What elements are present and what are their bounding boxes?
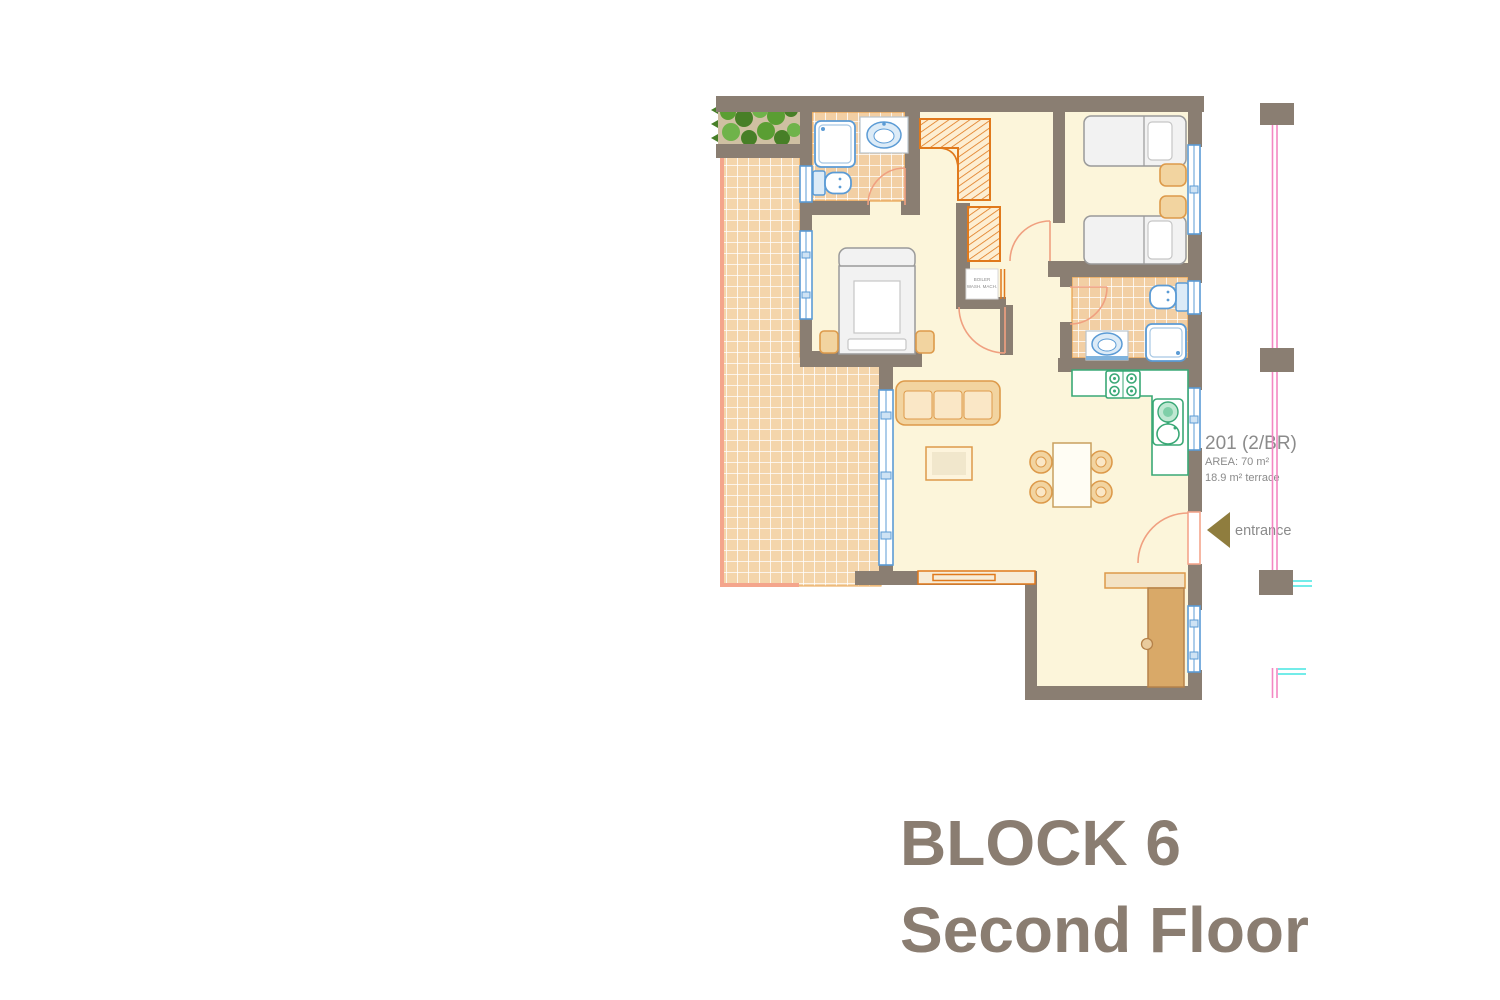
- kitchen-sink-icon: [1153, 399, 1183, 445]
- dining-chair-icon: [1030, 481, 1052, 503]
- sink-icon: [1086, 331, 1128, 360]
- tall-cabinet-icon: [1142, 588, 1185, 687]
- column-marker: [1260, 348, 1294, 372]
- entrance-label: entrance: [1235, 523, 1291, 539]
- shower-icon: [815, 121, 855, 167]
- floor-plan-page: BOILER WASH. MACH.: [0, 0, 1500, 1000]
- dining-chair-icon: [1090, 481, 1112, 503]
- dining-chair-icon: [1030, 451, 1052, 473]
- window-living-room: [879, 390, 893, 565]
- nightstand-icon: [1160, 196, 1186, 218]
- unit-annotation: 201 (2/BR) AREA: 70 m² 18.9 m² terrace: [1205, 433, 1297, 484]
- coffee-table-icon: [926, 447, 972, 480]
- window-bedroom1: [800, 231, 812, 319]
- unit-number-label: 201 (2/BR): [1205, 433, 1297, 454]
- nightstand-icon: [1160, 164, 1186, 186]
- column-marker: [1260, 103, 1294, 125]
- dining-table-icon: [1053, 443, 1091, 507]
- console-shelf-icon: [1105, 573, 1185, 588]
- window-bathroom1: [800, 166, 812, 202]
- dining-chair-icon: [1090, 451, 1112, 473]
- window-bathroom2: [1188, 281, 1200, 314]
- utility-label-line2: WASH. MACH.: [967, 284, 997, 289]
- toilet-icon: [813, 171, 851, 195]
- double-bed-icon: [839, 248, 915, 354]
- unit-area-label: AREA: 70 m²: [1205, 456, 1270, 468]
- wardrobe-2: [968, 207, 1000, 261]
- unit-terrace-label: 18.9 m² terrace: [1205, 472, 1280, 484]
- entrance-arrow-icon: [1207, 512, 1230, 548]
- entrance-annotation: entrance: [1207, 512, 1291, 548]
- window-kitchen: [1188, 388, 1200, 450]
- sofa-icon: [896, 381, 1000, 425]
- window-hall: [1188, 606, 1200, 672]
- sliding-door-terrace: [918, 571, 1035, 584]
- nightstand-icon: [820, 331, 838, 353]
- window-bedroom2: [1188, 145, 1200, 234]
- plan-title: BLOCK 6 Second Floor: [900, 807, 1309, 966]
- single-bed-icon: [1084, 216, 1186, 264]
- utility-label-line1: BOILER: [974, 277, 991, 282]
- stove-icon: [1106, 371, 1140, 398]
- boundary-markers: [1259, 103, 1312, 698]
- column-marker: [1259, 570, 1293, 595]
- sink-icon: [860, 117, 908, 153]
- plan-title-line2: Second Floor: [900, 894, 1309, 966]
- single-bed-icon: [1084, 116, 1186, 166]
- toilet-icon: [1150, 283, 1188, 311]
- floor-plan-drawing: BOILER WASH. MACH.: [0, 0, 1500, 1000]
- shower-icon: [1146, 324, 1186, 361]
- plan-title-line1: BLOCK 6: [900, 807, 1181, 879]
- nightstand-icon: [916, 331, 934, 353]
